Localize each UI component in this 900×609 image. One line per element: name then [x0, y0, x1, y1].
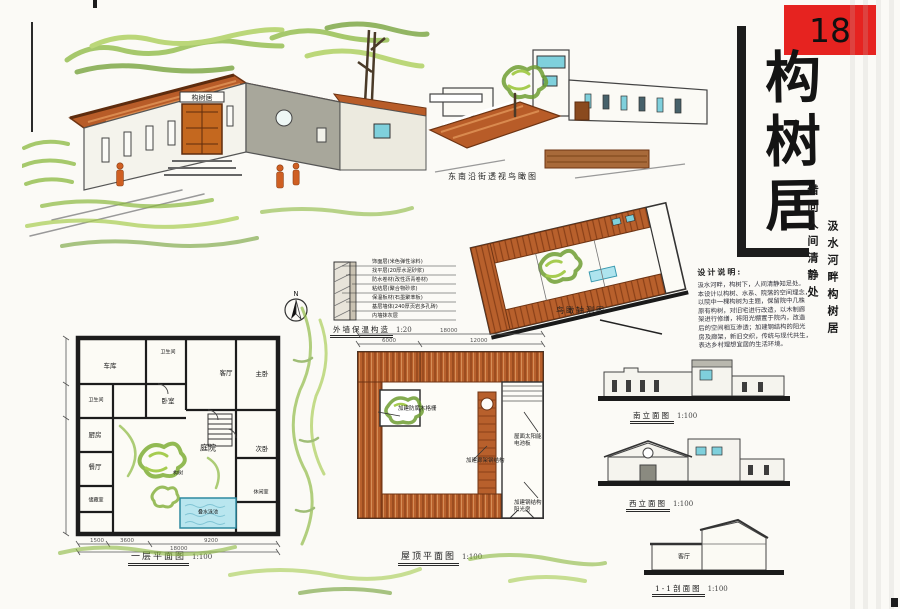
roof-annotation-1: 加建防腐木格栅 [398, 406, 444, 413]
birdseye-sketch [450, 198, 712, 340]
title-bracket-horizontal [737, 248, 809, 257]
elevation-south-drawing [596, 348, 794, 406]
svg-text:12000: 12000 [470, 338, 488, 344]
scan-speck-corner [891, 598, 898, 607]
door-plaque-text: 构树居 [192, 93, 213, 102]
room-label-leisure: 休闲室 [253, 489, 268, 496]
room-label-dining: 餐厅 [89, 461, 102, 471]
design-notes: 设计说明: 汲水河畔，构树下，人间清静知足处。 本设计以构树、水系、院落的空间理… [697, 265, 838, 351]
caption-leader-line [600, 320, 662, 334]
svg-text:18000: 18000 [440, 328, 458, 334]
room-label-bath1: 卫生间 [160, 349, 175, 356]
section-room-label: 客厅 [678, 552, 690, 561]
roof-annotation-2: 加建廊架钢结构 [466, 458, 512, 465]
room-label-living: 客厅 [220, 367, 233, 377]
svg-text:6000: 6000 [382, 338, 396, 344]
scan-streaks [850, 0, 900, 609]
birdseye-caption: 鸟瞰轴测图 [556, 305, 606, 316]
room-label-courtyard: 庭院 [200, 443, 216, 454]
elevation-west-drawing [596, 423, 794, 495]
room-label-pool: 叠水泳池 [198, 509, 218, 516]
street-perspective-sketch [425, 32, 720, 192]
wood-terrace [545, 150, 649, 168]
ground-line [598, 481, 790, 486]
title-char-2: 树 [757, 109, 828, 174]
title-bracket-vertical [737, 26, 746, 257]
section-caption: 1-1剖面图1:100 [652, 583, 728, 594]
room-label-storage: 储藏室 [88, 497, 103, 504]
presentation-board: 构树居 [0, 0, 900, 609]
room-label-master: 主卧 [256, 368, 269, 378]
elevation-south-caption: 南立面图1:100 [630, 410, 697, 421]
scan-speck-top [93, 0, 97, 8]
elevation-west-caption: 西立面图1:100 [626, 498, 693, 509]
room-label-garage: 车库 [104, 360, 117, 370]
foliage-vine-strokes [282, 300, 362, 552]
floor-plan-drawing: N [58, 288, 310, 558]
ground-line [644, 570, 784, 575]
courtyard-compound [471, 203, 689, 338]
street-perspective-caption: 东南沿街透视鸟瞰图 [448, 171, 538, 182]
foliage-bottom-strokes [50, 535, 610, 607]
roof-annotation-3: 屋面太阳能电池板 [514, 434, 544, 448]
title-char-1: 构 [757, 45, 828, 110]
wall-detail-layers: 饰面层(米色弹性涂料) 找平层(20厚水泥砂浆) 防水卷材(改性沥青卷材) 粘结… [372, 258, 438, 321]
room-label-kitchen: 厨房 [89, 429, 102, 439]
design-notes-heading: 设计说明: [697, 265, 837, 278]
room-label-tree: 构树 [173, 470, 183, 477]
section-drawing [638, 510, 794, 582]
design-notes-line: 表达乡村理想宜居的生活环境。 [699, 340, 839, 351]
room-label-secondbed: 次卧 [256, 443, 269, 453]
ground-strokes [27, 190, 412, 246]
svg-text:N: N [293, 290, 298, 298]
ground-line [598, 396, 790, 401]
main-perspective-sketch: 构树居 [22, 20, 434, 268]
roof-annotation-4: 加建钢结构阳光房 [514, 500, 544, 514]
room-label-bath2: 卫生间 [88, 397, 103, 404]
pergola-strip [478, 392, 496, 494]
room-label-bedroom: 卧室 [162, 395, 175, 405]
